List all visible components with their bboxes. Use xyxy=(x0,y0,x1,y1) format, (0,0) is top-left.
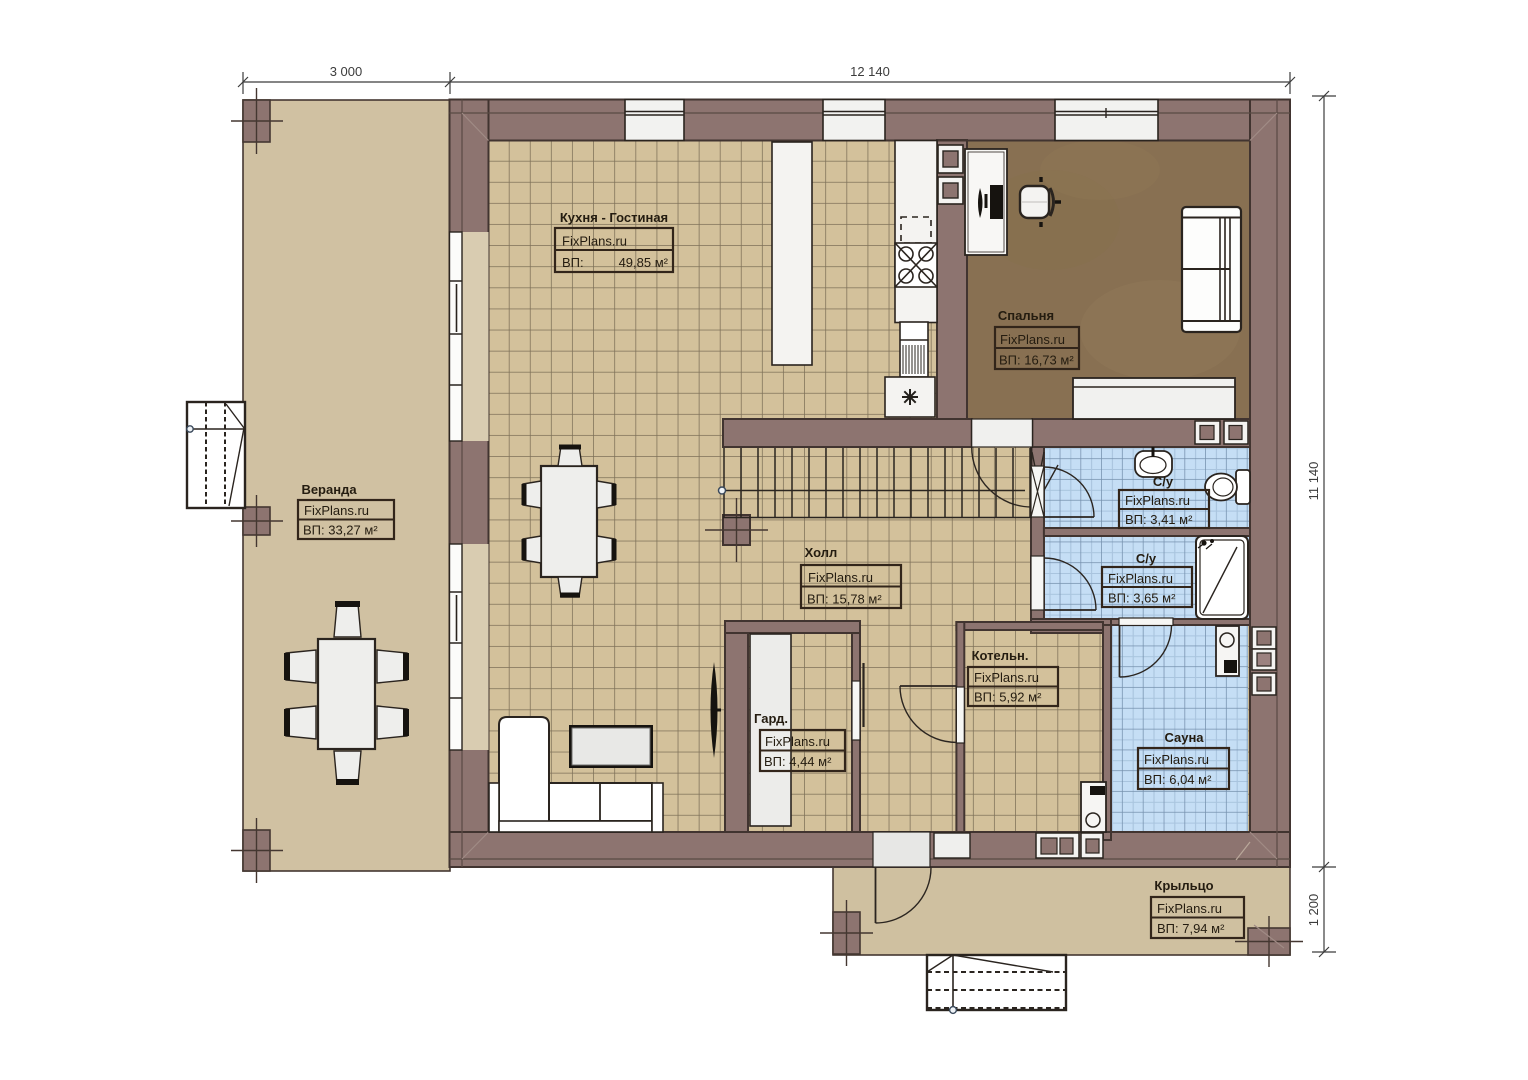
svg-text:12 140: 12 140 xyxy=(850,64,890,79)
svg-text:С/у: С/у xyxy=(1136,551,1157,566)
svg-text:С/у: С/у xyxy=(1153,474,1174,489)
svg-text:1 200: 1 200 xyxy=(1306,894,1321,927)
svg-text:49,85 м²: 49,85 м² xyxy=(619,255,669,270)
svg-text:ВП:: ВП: xyxy=(562,255,584,270)
svg-text:ВП: 3,65 м²: ВП: 3,65 м² xyxy=(1108,591,1176,606)
svg-text:11 140: 11 140 xyxy=(1306,462,1321,501)
svg-text:Холл: Холл xyxy=(805,545,838,560)
svg-text:FixPlans.ru: FixPlans.ru xyxy=(1125,493,1190,508)
svg-text:FixPlans.ru: FixPlans.ru xyxy=(1108,571,1173,586)
svg-text:ВП: 3,41 м²: ВП: 3,41 м² xyxy=(1125,512,1193,527)
svg-text:Гард.: Гард. xyxy=(754,711,788,726)
svg-text:ВП: 7,94 м²: ВП: 7,94 м² xyxy=(1157,921,1225,936)
svg-text:ВП: 4,44 м²: ВП: 4,44 м² xyxy=(764,754,832,769)
svg-text:Веранда: Веранда xyxy=(301,482,357,497)
svg-text:Котельн.: Котельн. xyxy=(972,648,1029,663)
svg-text:FixPlans.ru: FixPlans.ru xyxy=(1000,332,1065,347)
svg-text:ВП: 15,78 м²: ВП: 15,78 м² xyxy=(807,592,882,607)
svg-text:FixPlans.ru: FixPlans.ru xyxy=(765,734,830,749)
svg-text:FixPlans.ru: FixPlans.ru xyxy=(1144,752,1209,767)
svg-text:Спальня: Спальня xyxy=(998,308,1054,323)
svg-text:ВП: 5,92 м²: ВП: 5,92 м² xyxy=(974,690,1042,705)
svg-text:FixPlans.ru: FixPlans.ru xyxy=(808,570,873,585)
svg-text:Крыльцо: Крыльцо xyxy=(1154,878,1213,893)
svg-text:FixPlans.ru: FixPlans.ru xyxy=(562,234,627,249)
svg-text:ВП: 16,73 м²: ВП: 16,73 м² xyxy=(999,353,1074,368)
svg-text:Кухня - Гостиная: Кухня - Гостиная xyxy=(560,210,668,225)
svg-text:ВП: 33,27 м²: ВП: 33,27 м² xyxy=(303,523,378,538)
svg-text:FixPlans.ru: FixPlans.ru xyxy=(1157,901,1222,916)
svg-text:3 000: 3 000 xyxy=(330,64,363,79)
svg-text:ВП: 6,04 м²: ВП: 6,04 м² xyxy=(1144,772,1212,787)
svg-text:FixPlans.ru: FixPlans.ru xyxy=(304,503,369,518)
svg-text:FixPlans.ru: FixPlans.ru xyxy=(974,670,1039,685)
svg-text:Сауна: Сауна xyxy=(1164,730,1204,745)
